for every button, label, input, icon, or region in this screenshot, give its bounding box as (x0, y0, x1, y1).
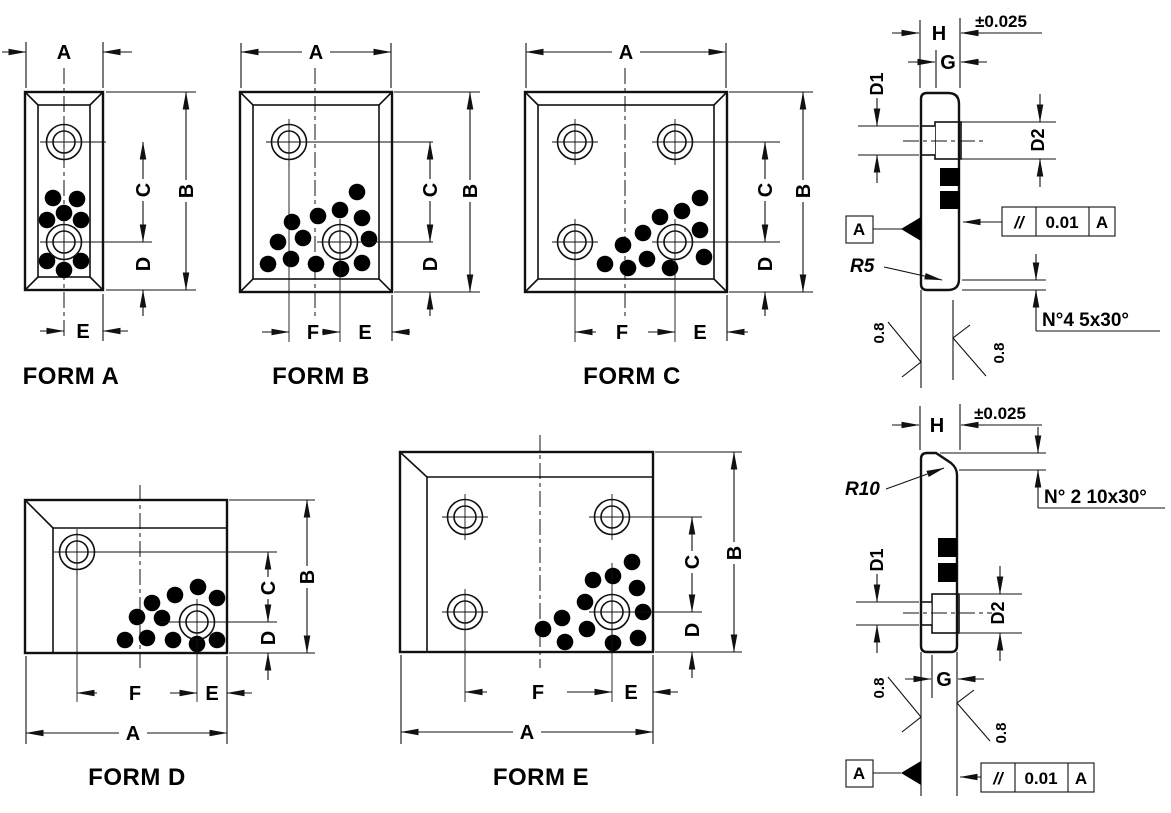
dim-label-D2: D2 (988, 601, 1008, 624)
dim-label-B: B (793, 184, 815, 198)
dim-label-A: A (309, 42, 323, 64)
dim-label-D: D (133, 257, 155, 271)
dim-label-E: E (205, 683, 218, 705)
dim-label-F: F (129, 683, 141, 705)
dim-label-E: E (624, 682, 637, 704)
dim-label-E: E (358, 322, 371, 344)
dim-label-C: C (420, 183, 442, 197)
radius-label: R10 (845, 479, 880, 500)
dim-label-A: A (520, 722, 534, 744)
dim-label-C: C (682, 555, 704, 569)
dim-label-E: E (693, 322, 706, 344)
form-d-title: FORM D (88, 764, 186, 791)
parallelism-value: 0.01 (1045, 213, 1078, 232)
dim-label-H: H (930, 415, 944, 437)
engineering-drawing-page: A B C D E FORM A (0, 0, 1171, 813)
roughness-value: 0.8 (991, 343, 1008, 364)
tolerance-label: ±0.025 (974, 404, 1026, 423)
dim-label-C: C (258, 581, 280, 595)
dim-label-C: C (133, 183, 155, 197)
dim-label-D: D (258, 631, 280, 645)
datum-label: A (853, 764, 865, 783)
dim-label-D1: D1 (867, 72, 887, 95)
graphite-plug-section (938, 563, 957, 582)
dim-label-F: F (616, 322, 628, 344)
dim-label-A: A (57, 42, 71, 64)
chamfer-note: N°4 5x30° (1042, 310, 1129, 331)
form-a-title: FORM A (23, 363, 120, 390)
dim-label-D1: D1 (867, 548, 887, 571)
roughness-value: 0.8 (871, 678, 888, 699)
dim-label-C: C (755, 183, 777, 197)
dim-label-G: G (940, 52, 956, 74)
roughness-value: 0.8 (993, 723, 1010, 744)
dim-label-D2: D2 (1028, 128, 1048, 151)
graphite-plug-section (938, 538, 957, 557)
dim-label-G: G (936, 669, 952, 691)
dim-label-E: E (76, 321, 89, 343)
dim-label-B: B (724, 546, 746, 560)
chamfer-note: N° 2 10x30° (1044, 487, 1147, 508)
parallelism-datum: A (1096, 213, 1108, 232)
form-c-title: FORM C (583, 363, 681, 390)
dim-label-B: B (460, 184, 482, 198)
parallelism-value: 0.01 (1024, 769, 1057, 788)
radius-label: R5 (850, 256, 875, 277)
roughness-value: 0.8 (871, 323, 888, 344)
dim-label-F: F (532, 682, 544, 704)
dim-label-B: B (176, 184, 198, 198)
dim-label-B: B (297, 570, 319, 584)
dim-label-A: A (126, 723, 140, 745)
dim-label-F: F (307, 322, 319, 344)
dim-label-D: D (682, 623, 704, 637)
dim-label-H: H (932, 23, 946, 45)
dim-label-A: A (619, 42, 633, 64)
form-b-title: FORM B (272, 363, 370, 390)
wear-plate-drawing: A B C D E FORM A (0, 0, 1171, 813)
datum-label: A (853, 220, 865, 239)
graphite-plug-section (940, 168, 960, 186)
dim-label-D: D (755, 257, 777, 271)
form-e-title: FORM E (493, 764, 589, 791)
parallelism-datum: A (1075, 769, 1087, 788)
dim-label-D: D (420, 257, 442, 271)
graphite-plug-section (940, 191, 960, 209)
tolerance-label: ±0.025 (975, 12, 1027, 31)
